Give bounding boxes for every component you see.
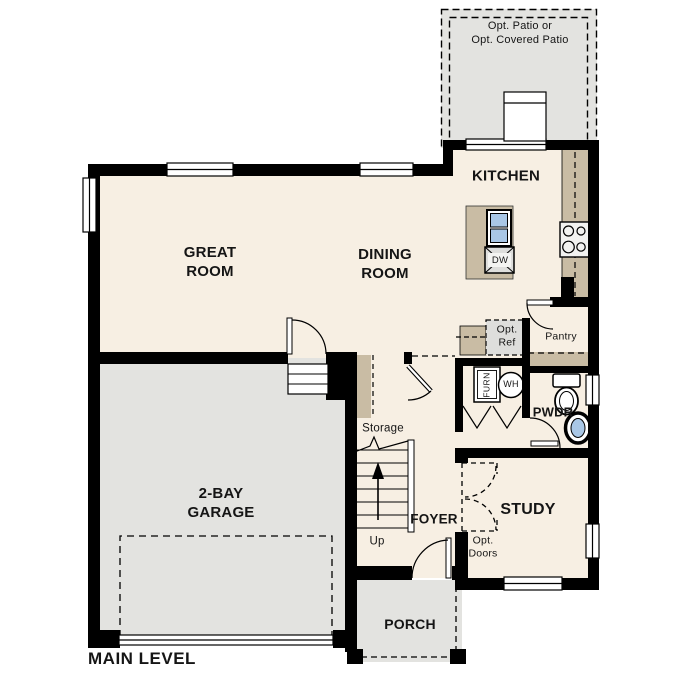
foyer-label: FOYER (410, 510, 458, 527)
window-icon (586, 375, 599, 405)
dining-room-label: DINING ROOM (358, 245, 412, 283)
pantry-shelf (528, 352, 590, 366)
ref-counter (460, 326, 486, 355)
study-label: STUDY (500, 500, 555, 520)
water-heater-label: WH (503, 379, 518, 391)
main-level-title: MAIN LEVEL (88, 648, 196, 670)
pantry-label: Pantry (545, 330, 577, 343)
window-icon (360, 163, 413, 176)
storage-label: Storage (362, 422, 404, 437)
patio-label: Opt. Patio or Opt. Covered Patio (471, 19, 568, 47)
cooktop-icon (560, 222, 589, 257)
pwdr-label: PWDR (533, 405, 574, 422)
opt-doors-label: Opt. Doors (468, 535, 497, 562)
up-label: Up (369, 535, 384, 550)
furnace-label: FURN (482, 372, 493, 398)
garage-label: 2-BAY GARAGE (187, 484, 254, 522)
kitchen-label: KITCHEN (472, 166, 540, 185)
kitchen-sink-icon (487, 210, 511, 246)
kitchen-island (466, 206, 514, 279)
floor-plan-drawing (0, 0, 687, 687)
porch-label: PORCH (384, 616, 436, 634)
garage-door-icon (119, 635, 333, 645)
window-icon (167, 163, 233, 176)
great-room-label: GREAT ROOM (184, 243, 236, 281)
window-icon (83, 178, 96, 232)
window-icon (504, 577, 562, 590)
floor-plan: Opt. Patio or Opt. Covered Patio KITCHEN… (0, 0, 687, 687)
stair-closet-counter (357, 355, 371, 418)
opt-ref-label: Opt. Ref (497, 324, 518, 351)
window-icon (586, 524, 599, 558)
dishwasher-label: DW (492, 255, 508, 267)
patio-landing (504, 92, 546, 141)
garage-steps-icon (288, 364, 328, 394)
